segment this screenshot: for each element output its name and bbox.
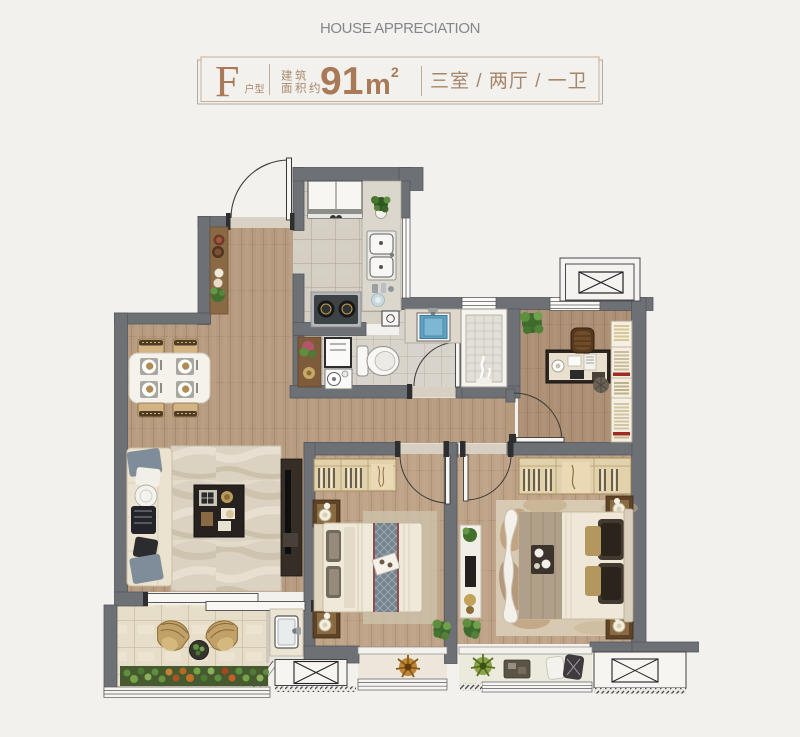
svg-text:三室 / 两厅 / 一卫: 三室 / 两厅 / 一卫	[430, 70, 588, 92]
svg-text:m: m	[365, 69, 391, 101]
svg-text:91: 91	[320, 60, 363, 103]
svg-text:面积约: 面积约	[281, 81, 323, 95]
svg-text:F: F	[215, 57, 239, 106]
svg-text:户型: 户型	[245, 83, 265, 96]
svg-text:HOUSE APPRECIATION: HOUSE APPRECIATION	[320, 20, 480, 37]
svg-text:2: 2	[391, 64, 399, 80]
svg-text:建筑: 建筑	[281, 69, 309, 83]
